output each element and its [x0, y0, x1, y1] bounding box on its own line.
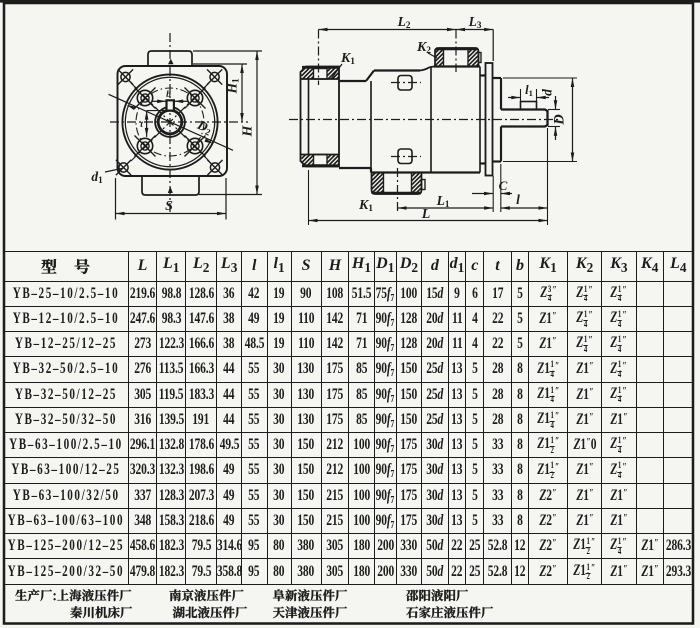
svg-text:K1: K1	[358, 198, 373, 214]
svg-text:L1: L1	[436, 193, 450, 209]
svg-text:d1: d1	[91, 169, 103, 185]
svg-text:S: S	[165, 199, 173, 214]
svg-text:D: D	[552, 114, 568, 126]
svg-text:l: l	[516, 192, 520, 207]
svg-text:H: H	[241, 124, 256, 137]
svg-text:L: L	[421, 207, 431, 222]
svg-text:d: d	[540, 89, 555, 96]
svg-text:C: C	[499, 178, 508, 193]
svg-text:b: b	[166, 90, 171, 100]
svg-text:L3: L3	[468, 14, 482, 30]
svg-text:l1: l1	[525, 83, 533, 98]
svg-text:t: t	[140, 120, 143, 130]
svg-text:L2: L2	[397, 14, 411, 30]
